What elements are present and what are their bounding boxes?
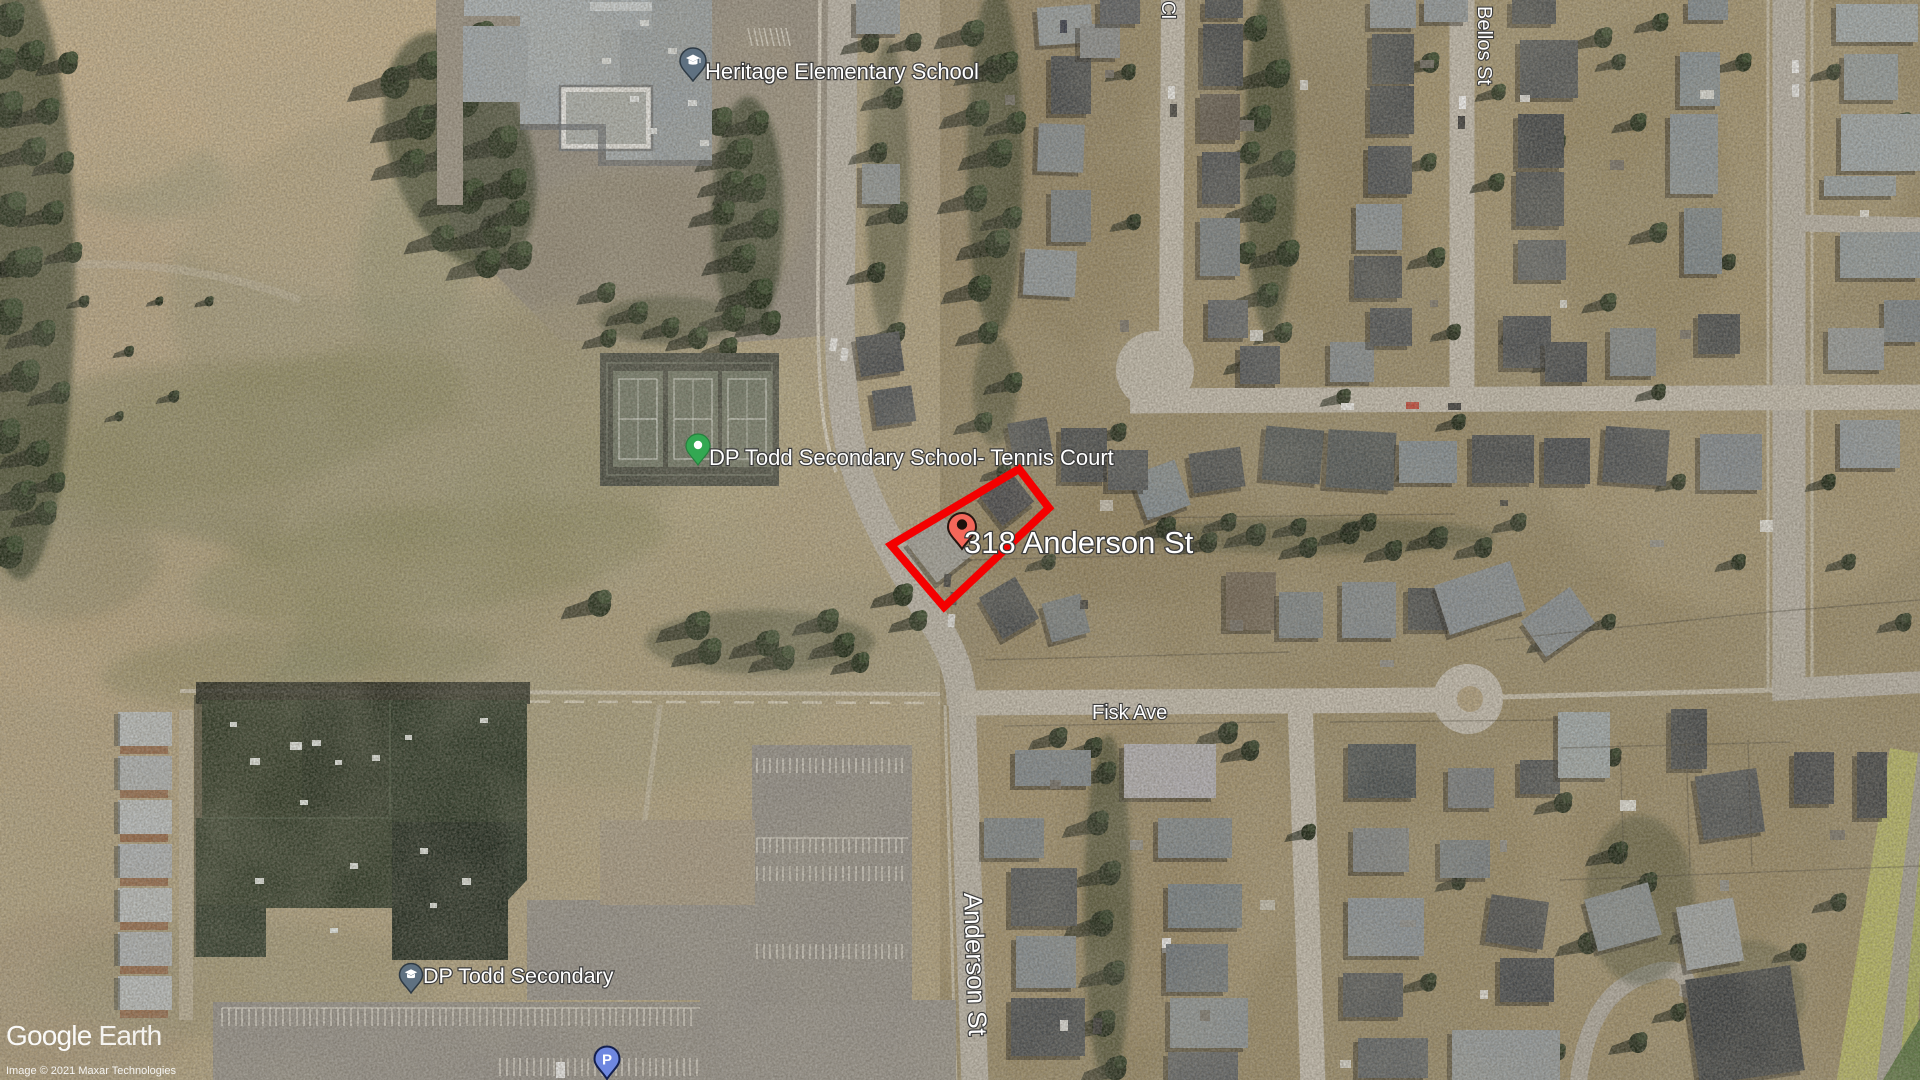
- svg-text:Cl: Cl: [1157, 1, 1178, 19]
- svg-text:Heritage Elementary School: Heritage Elementary School: [705, 59, 979, 84]
- svg-text:DP Todd Secondary: DP Todd Secondary: [423, 964, 614, 988]
- svg-text:Anderson St: Anderson St: [958, 892, 993, 1037]
- svg-text:318 Anderson St: 318 Anderson St: [964, 525, 1194, 560]
- svg-text:P: P: [602, 1052, 612, 1069]
- svg-text:Google Earth: Google Earth: [6, 1020, 161, 1051]
- svg-text:Fisk Ave: Fisk Ave: [1092, 702, 1167, 724]
- svg-text:Bellos St: Bellos St: [1473, 6, 1495, 85]
- svg-text:DP Todd Secondary School- Tenn: DP Todd Secondary School- Tennis Court: [709, 445, 1114, 470]
- svg-text:Image © 2021 Maxar Technologie: Image © 2021 Maxar Technologies: [6, 1065, 176, 1077]
